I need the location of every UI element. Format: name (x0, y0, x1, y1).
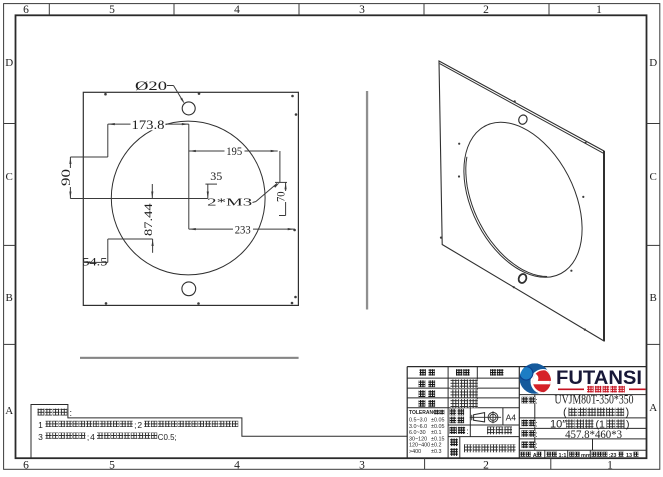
svg-text:UVJM80T-350*350: UVJM80T-350*350 (555, 393, 634, 407)
svg-text:±0.05: ±0.05 (431, 424, 444, 430)
svg-text:C0.5;: C0.5; (158, 432, 177, 442)
svg-text:C: C (6, 171, 13, 183)
svg-text:1:1: 1:1 (559, 453, 567, 459)
svg-text:2: 2 (137, 420, 142, 430)
svg-text:;: ; (134, 420, 136, 430)
svg-text:D: D (5, 57, 13, 69)
svg-text:30~120: 30~120 (409, 436, 427, 442)
svg-text:A4: A4 (506, 412, 517, 422)
svg-text:4: 4 (234, 4, 240, 16)
svg-text:B: B (650, 292, 657, 304)
svg-text:(: ( (563, 406, 567, 418)
svg-text:A: A (5, 405, 13, 417)
svg-text:173.8: 173.8 (132, 118, 165, 132)
svg-text:233: 233 (235, 222, 251, 236)
svg-text:D: D (649, 57, 657, 69)
svg-text::: : (467, 427, 469, 436)
svg-text:5: 5 (109, 4, 115, 16)
svg-text:35: 35 (210, 171, 222, 183)
svg-text:±0.05: ±0.05 (431, 418, 444, 424)
svg-text:±0.15: ±0.15 (431, 436, 444, 442)
svg-text:6.0~30: 6.0~30 (409, 430, 426, 436)
svg-text:87.44: 87.44 (141, 203, 155, 236)
svg-text:±0.2: ±0.2 (431, 443, 441, 449)
svg-text:1: 1 (596, 4, 602, 16)
svg-text:4: 4 (234, 460, 240, 472)
svg-text:2: 2 (483, 460, 489, 472)
svg-text:3: 3 (38, 432, 43, 442)
svg-text:3: 3 (359, 4, 365, 16)
svg-text::: : (70, 408, 73, 418)
svg-text:): ) (626, 419, 630, 431)
svg-text:120~400: 120~400 (409, 443, 430, 449)
svg-text:13: 13 (626, 453, 632, 459)
svg-text:>400: >400 (409, 449, 421, 455)
svg-text:): ) (626, 406, 630, 418)
svg-text:B: B (6, 292, 13, 304)
svg-text::: : (535, 419, 537, 428)
svg-text:±0.3: ±0.3 (431, 449, 441, 455)
svg-text:±0.1: ±0.1 (431, 430, 441, 436)
svg-text:5: 5 (109, 460, 115, 472)
svg-text:A: A (649, 402, 657, 414)
svg-text:6: 6 (23, 460, 29, 472)
svg-text::23: :23 (609, 453, 617, 459)
svg-text:2*M3: 2*M3 (207, 198, 252, 209)
svg-text:195: 195 (226, 144, 242, 158)
svg-text:10″: 10″ (550, 419, 566, 431)
svg-text:4: 4 (90, 432, 95, 442)
svg-text:90: 90 (59, 169, 73, 186)
svg-text:2: 2 (483, 4, 489, 16)
svg-text:70: 70 (275, 191, 287, 202)
svg-text:mm: mm (581, 453, 591, 459)
svg-text::: : (535, 430, 537, 439)
svg-text:3: 3 (359, 460, 365, 472)
svg-text:3.0~6.0: 3.0~6.0 (409, 424, 427, 430)
svg-text:1: 1 (38, 420, 43, 430)
svg-text::: : (535, 397, 537, 406)
svg-text:6: 6 (23, 4, 29, 16)
svg-text:A: A (533, 453, 537, 459)
svg-text::: : (535, 441, 537, 450)
svg-text:Ø20: Ø20 (135, 78, 167, 93)
svg-text:FUTANSI: FUTANSI (556, 368, 642, 389)
svg-text:457.8*460*3: 457.8*460*3 (565, 427, 622, 441)
svg-text:C: C (650, 171, 657, 183)
svg-text:0.5~3.0: 0.5~3.0 (409, 418, 427, 424)
svg-text:1: 1 (607, 460, 613, 472)
svg-text:;: ; (87, 432, 89, 442)
svg-text:54.5: 54.5 (82, 254, 107, 268)
